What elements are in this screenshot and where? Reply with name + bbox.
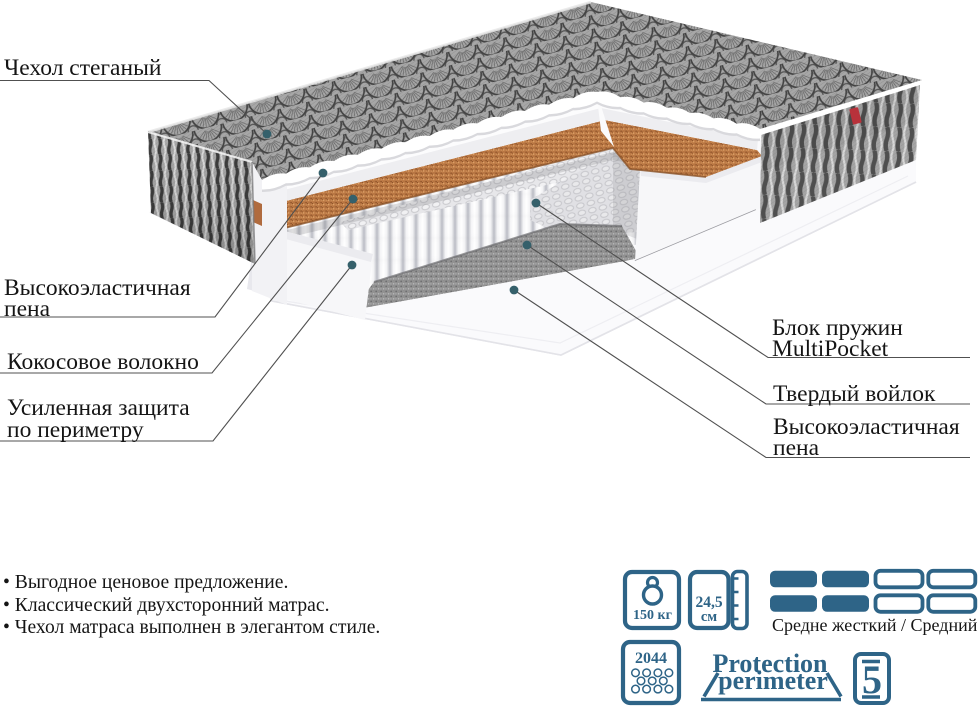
svg-text:5: 5 — [862, 657, 882, 702]
svg-text:Средне жесткий / Средний: Средне жесткий / Средний — [772, 615, 978, 635]
svg-text:MultiPocket: MultiPocket — [772, 336, 889, 362]
svg-text:пена: пена — [773, 435, 820, 461]
svg-text:• Чехол матраса выполнен в эле: • Чехол матраса выполнен в элегантом сти… — [3, 617, 380, 638]
svg-text:2044: 2044 — [635, 650, 667, 667]
svg-text:Кокосовое волокно: Кокосовое волокно — [7, 349, 199, 375]
svg-text:150 кг: 150 кг — [633, 608, 672, 623]
svg-text:• Выгодное ценовое предложение: • Выгодное ценовое предложение. — [3, 572, 288, 593]
svg-text:perimeter: perimeter — [718, 666, 828, 695]
svg-text:Чехол стеганый: Чехол стеганый — [4, 55, 162, 81]
svg-text:пена: пена — [4, 296, 51, 322]
svg-text:см: см — [701, 609, 717, 625]
svg-text:Твердый войлок: Твердый войлок — [773, 381, 936, 407]
svg-text:по периметру: по периметру — [7, 417, 144, 443]
svg-text:• Классический двухсторонний м: • Классический двухсторонний матрас. — [3, 595, 329, 616]
